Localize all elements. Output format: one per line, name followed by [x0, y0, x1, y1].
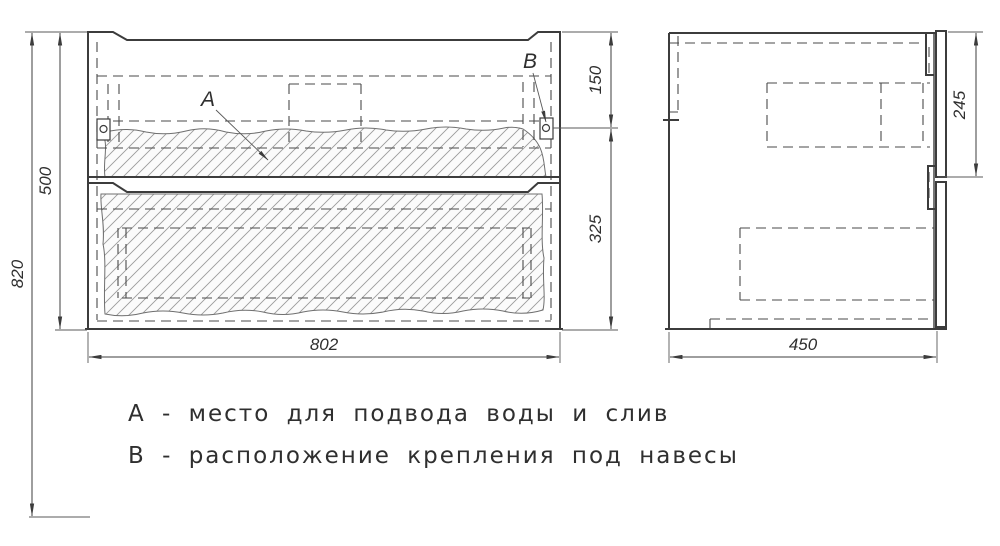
dim-label-500: 500	[36, 166, 55, 195]
mounting-bracket-left	[97, 119, 110, 140]
dim-label-325: 325	[586, 214, 605, 243]
side-top-drawer-front	[936, 31, 946, 177]
dim-label-150: 150	[586, 65, 605, 94]
dim-label-245: 245	[950, 90, 969, 120]
dim-bracket-offset: 150	[586, 33, 611, 127]
bracket-hole-icon	[100, 126, 107, 133]
mounting-bracket-right	[540, 118, 553, 139]
callout-a-label: А	[199, 88, 215, 111]
cabinet-dimension-drawing: 820 500 150 325 802 450 245 А	[0, 0, 1000, 546]
dim-overall-height: 820	[8, 33, 32, 516]
callout-b-label: В	[523, 50, 537, 73]
side-outline	[663, 33, 947, 329]
legend-line-a: А - место для подвода воды и слив	[128, 401, 669, 427]
dim-bracket-to-bottom: 325	[586, 129, 611, 329]
side-bottom-drawer-front	[936, 182, 946, 327]
dim-label-802: 802	[310, 335, 339, 354]
callout-b-leader	[533, 73, 546, 122]
dim-carcass-height: 500	[36, 33, 60, 329]
side-view	[663, 31, 947, 329]
bracket-hole-icon	[543, 125, 550, 132]
dim-label-450: 450	[789, 335, 818, 354]
front-view	[85, 32, 563, 329]
dim-label-820: 820	[8, 259, 27, 288]
technical-drawing-canvas: 820 500 150 325 802 450 245 А	[0, 0, 1000, 546]
legend-line-b: В - расположение крепления под навесы	[128, 443, 739, 469]
dim-depth: 450	[670, 335, 936, 357]
legend: А - место для подвода воды и слив В - ра…	[128, 401, 739, 469]
dim-top-front-height: 245	[950, 33, 976, 176]
section-hatch-top-drawer	[104, 127, 546, 177]
side-hidden-lines	[669, 36, 934, 328]
dim-width: 802	[89, 335, 559, 357]
